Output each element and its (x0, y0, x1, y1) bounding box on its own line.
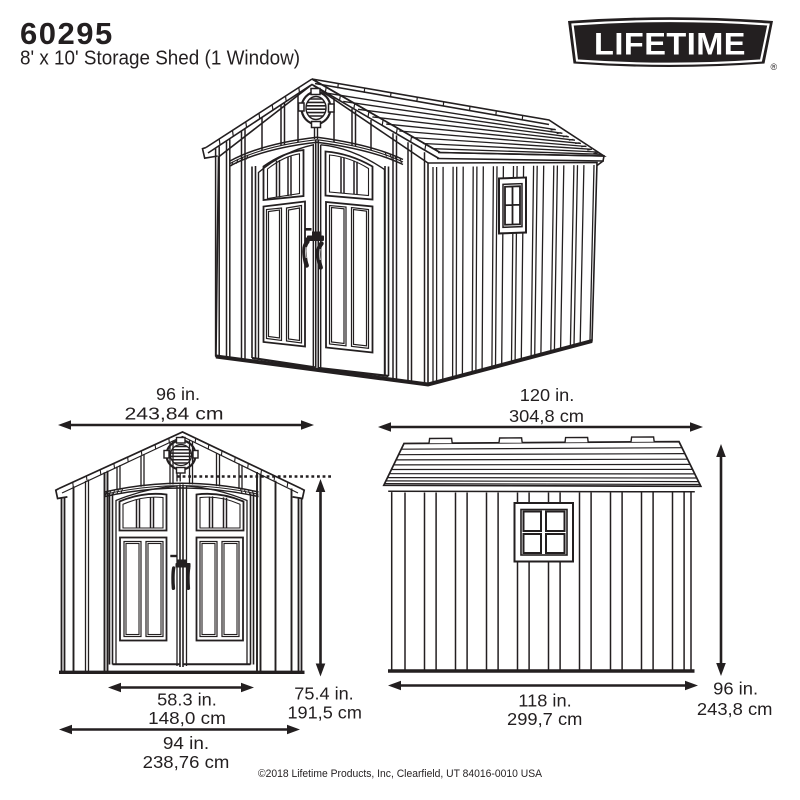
svg-text:191,5 cm: 191,5 cm (288, 703, 362, 723)
svg-text:©2018 Lifetime Products, Inc,: ©2018 Lifetime Products, Inc, Clearfield… (258, 768, 543, 780)
svg-text:94 in.: 94 in. (163, 733, 209, 753)
svg-text:LIFETIME: LIFETIME (594, 26, 746, 61)
svg-text:75.4 in.: 75.4 in. (294, 684, 353, 704)
svg-text:®: ® (771, 62, 778, 72)
svg-text:304,8 cm: 304,8 cm (509, 406, 584, 426)
svg-text:148,0 cm: 148,0 cm (148, 708, 226, 728)
svg-text:238,76 cm: 238,76 cm (143, 752, 230, 772)
svg-text:58.3 in.: 58.3 in. (157, 690, 217, 710)
svg-text:8' x 10' Storage Shed (1 Windo: 8' x 10' Storage Shed (1 Window) (20, 47, 300, 70)
svg-text:118 in.: 118 in. (518, 691, 571, 711)
svg-text:299,7 cm: 299,7 cm (507, 709, 582, 729)
svg-text:243,8 cm: 243,8 cm (697, 699, 773, 719)
svg-text:96 in.: 96 in. (713, 679, 758, 699)
svg-text:243,84 cm: 243,84 cm (125, 404, 224, 424)
svg-text:96 in.: 96 in. (156, 384, 200, 404)
svg-text:120 in.: 120 in. (520, 385, 575, 405)
